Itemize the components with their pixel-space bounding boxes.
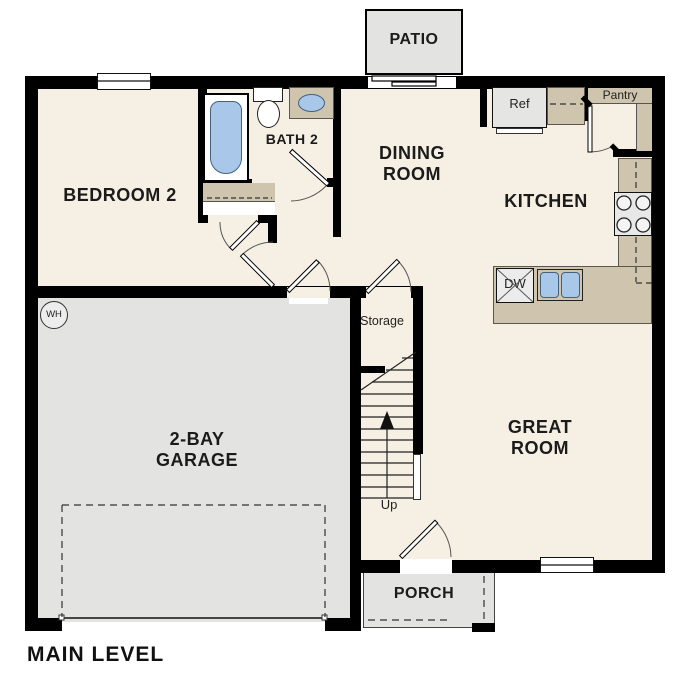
wall-dining-bath [333, 89, 341, 237]
wall-closet-stub-left [198, 215, 208, 223]
garage-entry-threshold [289, 298, 328, 304]
floor-plan: WH BEDROOM 2 BATH 2 DINING ROOM KITCHEN … [0, 0, 687, 687]
closet-floor [203, 202, 275, 215]
wall-kitchen-stub [480, 88, 487, 127]
water-heater-label: WH [46, 310, 62, 321]
wall-garage-top [25, 286, 423, 298]
bedroom2-label: BEDROOM 2 [38, 185, 202, 206]
greatroom-window [540, 557, 594, 573]
closet-shelf [203, 183, 275, 202]
stove [614, 192, 652, 236]
refrigerator-label: Ref [492, 97, 547, 112]
wall-exterior-left [25, 76, 38, 631]
wall-bath-stub [327, 178, 340, 187]
wall-porch-stub [472, 623, 495, 632]
stair-railing [413, 454, 421, 500]
wall-bedroom2-door-jamb [268, 215, 277, 243]
wall-garage-bottom-left [25, 618, 62, 631]
pantry-label: Pantry [588, 89, 652, 103]
storage-label: Storage [350, 314, 414, 328]
wall-exterior-right [652, 76, 665, 573]
bedroom2-window [97, 73, 151, 90]
kitchen-sink-basin-left [540, 272, 559, 298]
kitchen-sink-basin-right [561, 272, 580, 298]
front-door-opening [400, 559, 452, 574]
wall-garage-bottom-right [325, 618, 353, 631]
storage-door-opening [366, 287, 411, 298]
water-heater: WH [40, 301, 68, 329]
dishwasher-label: DW [496, 277, 534, 292]
wall-stair-storage-divider [361, 366, 385, 373]
counter-by-ref [547, 87, 585, 125]
up-label: Up [373, 498, 405, 513]
plan-title: MAIN LEVEL [27, 643, 247, 667]
bath-sink [298, 94, 325, 112]
greatroom-label: GREAT ROOM [488, 417, 592, 459]
garage-entry-opening [287, 287, 330, 298]
bath2-label: BATH 2 [256, 131, 328, 147]
wall-stairhall-right [413, 286, 423, 454]
wall-stairhall-left [350, 292, 361, 631]
bathtub [210, 101, 242, 174]
porch-label: PORCH [363, 585, 485, 603]
pantry-shelf-right [636, 104, 652, 151]
wall-greatroom-bottom [352, 560, 665, 573]
kitchen-label: KITCHEN [494, 191, 598, 212]
garage-label: 2-BAY GARAGE [135, 429, 259, 471]
toilet-bowl [257, 100, 280, 128]
refrigerator-door [496, 128, 543, 134]
patio-label: PATIO [365, 31, 463, 49]
dining-label: DINING ROOM [362, 143, 462, 185]
patio-door-opening [368, 77, 456, 88]
